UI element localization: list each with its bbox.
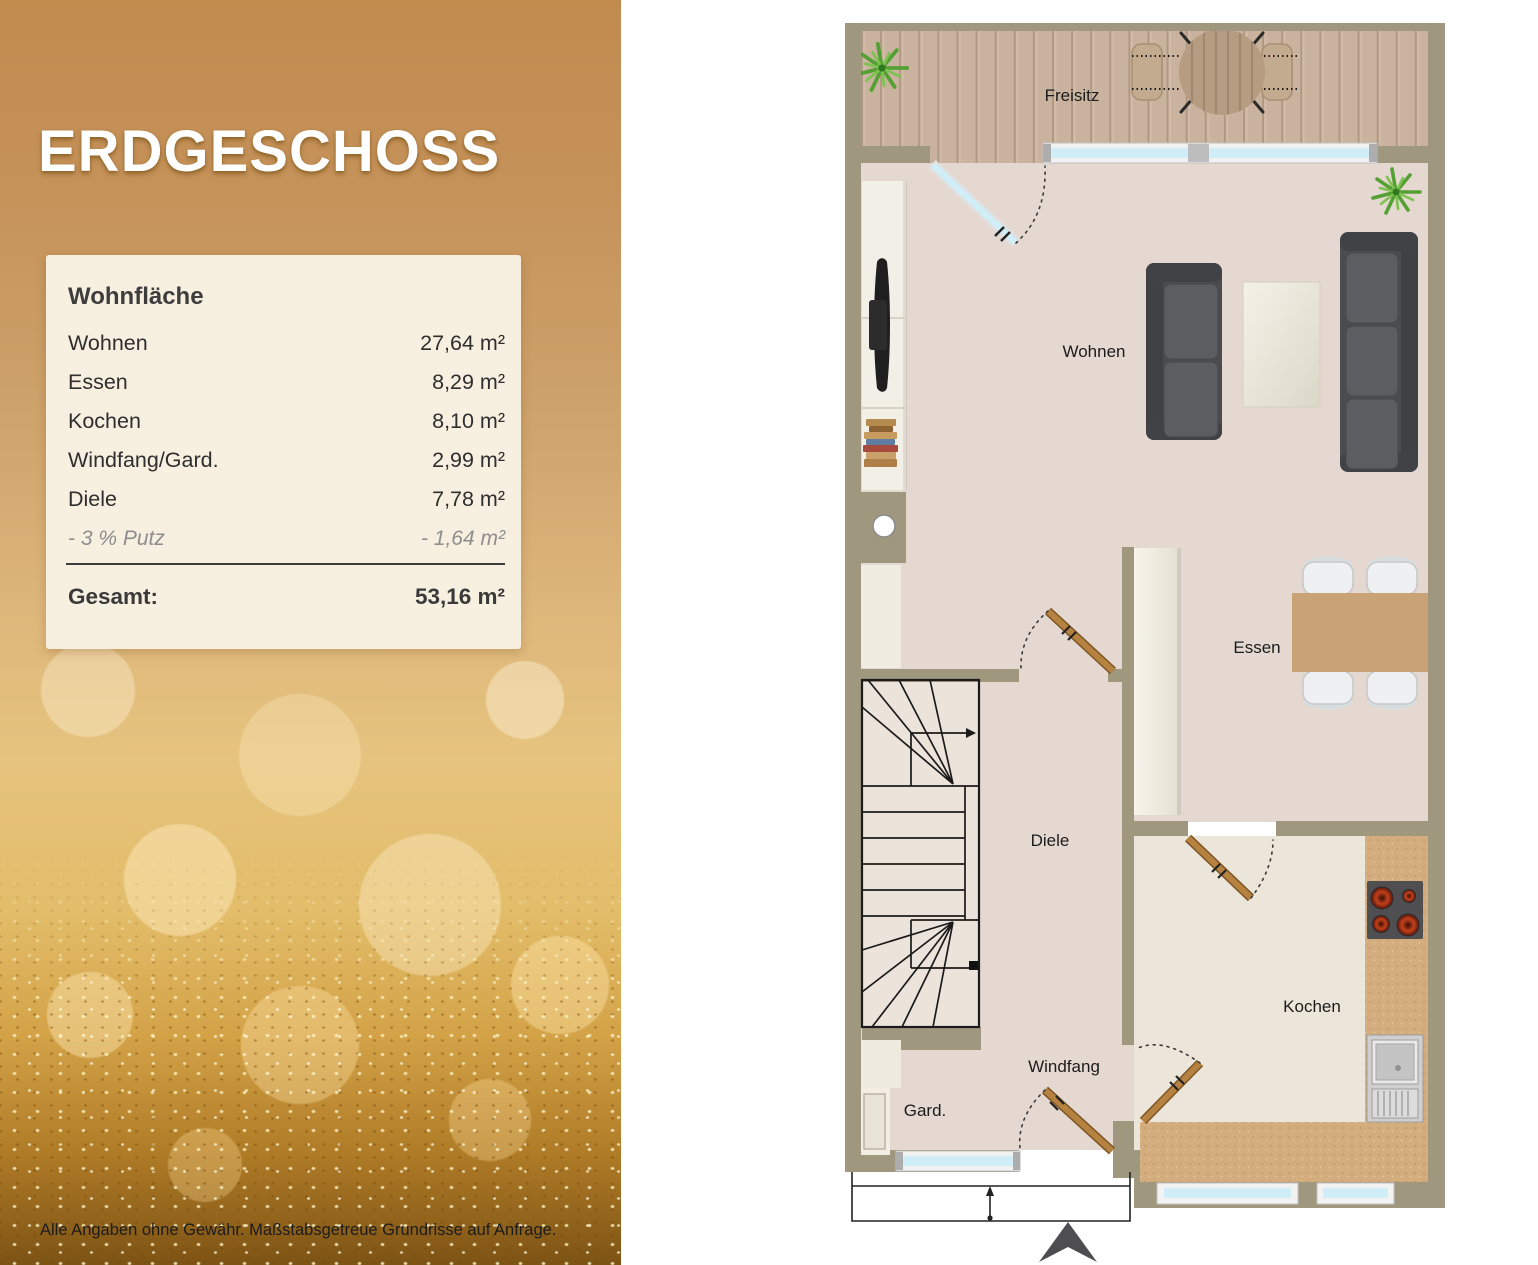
page-title: ERDGESCHOSS [38,118,500,185]
column-marker [873,515,895,537]
card-heading: Wohnfläche [68,283,499,311]
sideboard [862,181,907,490]
area-row-label: Kochen [68,402,141,441]
deduction-label: - 3 % Putz [68,519,165,558]
area-summary-card: Wohnfläche Wohnen 27,64 m² Essen 8,29 m²… [46,255,521,649]
wardrobe-icon [861,1088,890,1155]
area-row: Kochen 8,10 m² [68,402,505,441]
sofa-3seat [1340,232,1418,472]
cabinet-shadow [1177,548,1181,815]
area-row-label: Wohnen [68,324,148,363]
sink-icon [1367,1035,1423,1122]
stair-floor [862,680,979,1027]
window-terrace [1043,143,1377,163]
area-row-deduction: - 3 % Putz - 1,64 m² [68,519,505,558]
north-arrow-icon [1039,1222,1097,1262]
area-row-label: Essen [68,363,128,402]
dining-table [1292,593,1428,672]
disclaimer-text: Alle Angaben ohne Gewähr. Maßstabsgetreu… [40,1221,556,1240]
area-row: Essen 8,29 m² [68,363,505,402]
hall-cupboard [861,565,901,668]
tall-cabinet [1134,548,1181,815]
gard-shelf [861,1040,901,1088]
info-panel: ERDGESCHOSS Wohnfläche Wohnen 27,64 m² E… [0,0,621,1265]
room-label-wohnen: Wohnen [1062,342,1125,361]
area-row-value: 8,10 m² [432,402,505,441]
window-garderobe [896,1151,1020,1171]
area-row-value: 8,29 m² [432,363,505,402]
area-row: Wohnen 27,64 m² [68,324,505,363]
area-row-total: Gesamt: 53,16 m² [68,577,505,616]
step-arrow-icon [986,1186,994,1196]
room-label-essen: Essen [1233,638,1280,657]
floorplan-svg: Freisitz Wohnen Essen Diele Kochen Windf… [838,8,1450,1265]
floorplan: Freisitz Wohnen Essen Diele Kochen Windf… [838,8,1450,1265]
area-row-value: 27,64 m² [420,324,505,363]
entrance-steps [852,1172,1130,1221]
window-kitchen-1 [1157,1183,1298,1204]
room-label-garderobe: Gard. [904,1101,947,1120]
page: ERDGESCHOSS Wohnfläche Wohnen 27,64 m² E… [0,0,1538,1265]
area-row-label: Diele [68,480,117,519]
area-row-value: 2,99 m² [432,441,505,480]
divider [66,563,505,565]
window-kitchen-2 [1317,1183,1394,1204]
room-label-diele: Diele [1031,831,1070,850]
room-label-windfang: Windfang [1028,1057,1100,1076]
step-arrow-dot [987,1215,992,1220]
room-label-kochen: Kochen [1283,997,1341,1016]
cooktop-icon [1367,881,1423,939]
area-row-value: 7,78 m² [432,480,505,519]
area-row: Diele 7,78 m² [68,480,505,519]
room-label-freisitz: Freisitz [1045,86,1100,105]
total-label: Gesamt: [68,577,158,616]
deduction-value: - 1,64 m² [421,519,505,558]
area-row: Windfang/Gard. 2,99 m² [68,441,505,480]
total-value: 53,16 m² [415,577,505,616]
sofa-2seat [1146,263,1222,440]
coffee-table [1243,282,1320,407]
area-row-label: Windfang/Gard. [68,441,219,480]
